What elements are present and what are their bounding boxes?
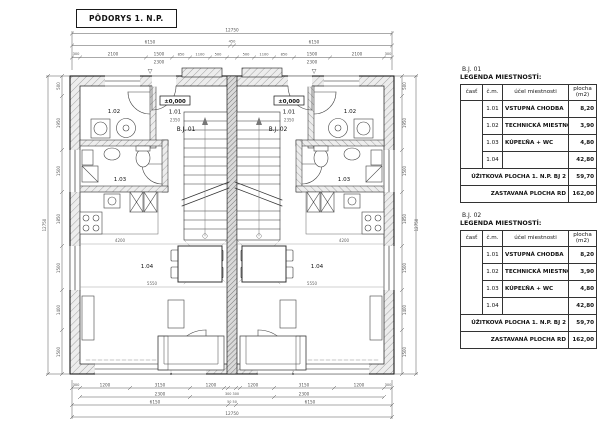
room-number: 1.03 [483,135,503,152]
svg-text:1950: 1950 [56,117,61,128]
svg-text:2300: 2300 [307,60,318,65]
svg-text:1200: 1200 [248,383,259,388]
col-cast: časť [461,231,483,247]
svg-text:1400: 1400 [402,304,407,315]
legend-header-row: časť č.m. účel miestnosti plocha(m2) [461,231,597,247]
svg-text:300: 300 [385,52,393,56]
svg-text:500: 500 [215,53,223,57]
svg-text:300: 300 [73,383,81,387]
svg-text:1100: 1100 [259,53,269,57]
room-101-label: 1.01 [169,110,182,116]
unit-right [235,75,395,374]
svg-text:500: 500 [402,82,407,90]
svg-text:1500: 1500 [307,52,318,57]
legend-table-bj01: časť č.m. účel miestnosti plocha(m2) 1.0… [460,84,597,203]
sofa [158,336,224,370]
svg-text:3150: 3150 [299,383,310,388]
hall-dim: 2350 [284,118,295,123]
svg-text:1500: 1500 [56,165,61,176]
hall-dim: 2350 [170,118,181,123]
living-dim-a: 4200 [115,238,126,243]
svg-text:300: 300 [73,52,81,56]
room-102-label: 1.02 [344,109,356,115]
svg-text:12750: 12750 [225,28,239,33]
built-area-value: 162,00 [569,186,597,203]
coffee-table [168,300,184,328]
col-cm: č.m. [483,231,503,247]
room-name [503,152,569,169]
svg-text:1500: 1500 [154,52,165,57]
svg-text:300: 300 [385,383,393,387]
svg-text:1850: 1850 [56,213,61,224]
room-area: 8,20 [569,247,597,264]
col-ucel: účel miestnosti [503,85,569,101]
svg-text:500: 500 [56,82,61,90]
tv-cabinet [82,296,94,340]
col-cast: časť [461,85,483,101]
room-name: TECHNICKÁ MIESTNOSŤ [503,264,569,281]
svg-text:450: 450 [229,40,237,44]
room-area: 8,20 [569,101,597,118]
top-dimensions [70,31,394,70]
porch-pier [242,68,282,77]
svg-text:1400: 1400 [56,304,61,315]
svg-text:1200: 1200 [100,383,111,388]
drawing-sheet: ±0,000 1.01 2350 B.J. 01 1.02 1.03 1.04 … [0,0,600,426]
room-area: 3,90 [569,118,597,135]
col-plocha: plocha(m2) [569,85,597,101]
room-name: VSTUPNÁ CHODBA [503,247,569,264]
porch-pier [182,68,222,77]
legend-unit-label: B.J. 01 [462,66,598,73]
bathroom-door [142,164,162,184]
col-plocha: plocha(m2) [569,231,597,247]
svg-text:6150: 6150 [305,400,316,405]
svg-text:12750: 12750 [414,218,419,231]
useful-area-label: ÚŽITKOVÁ PLOCHA 1. N.P. BJ 2 [461,315,569,332]
legend-title: LEGENDA MIESTNOSTÍ: [460,74,598,81]
svg-text:6150: 6150 [145,40,156,45]
legend-row: 1.01 VSTUPNÁ CHODBA 8,20 [461,101,597,118]
built-area-label: ZASTAVANÁ PLOCHA RD [461,332,569,349]
room-name: KÚPEĽŇA + WC [503,135,569,152]
washer-boiler [91,119,136,139]
room-103-label: 1.03 [338,177,351,183]
svg-text:1500: 1500 [402,262,407,273]
level-marker: ±0,000 [278,99,300,105]
bottom-dimension-labels: 300 1200 3150 1200 1200 3150 1200 300 23… [73,383,393,417]
unit-left [69,75,229,374]
room-name: TECHNICKÁ MIESTNOSŤ [503,118,569,135]
legend-footer-useful: ÚŽITKOVÁ PLOCHA 1. N.P. BJ 2 59,70 [461,169,597,186]
svg-text:300 300: 300 300 [225,392,239,396]
party-wall [227,76,237,374]
room-name: VSTUPNÁ CHODBA [503,101,569,118]
legend-bj02: B.J. 02 LEGENDA MIESTNOSTÍ: časť č.m. úč… [460,212,598,349]
svg-text:1500: 1500 [402,346,407,357]
svg-text:1200: 1200 [206,383,217,388]
room-area: 3,90 [569,264,597,281]
room-number: 1.01 [483,101,503,118]
svg-text:6150: 6150 [309,40,320,45]
svg-text:1200: 1200 [354,383,365,388]
svg-text:850: 850 [178,53,186,57]
room-102-label: 1.02 [108,109,120,115]
svg-text:500: 500 [243,53,251,57]
legend-title: LEGENDA MIESTNOSTÍ: [460,220,598,227]
top-dimension-labels: 12750 6150 450 6150 300 2100 1500 850 11… [73,28,393,65]
svg-text:1850: 1850 [402,213,407,224]
room-name [503,298,569,315]
col-ucel: účel miestnosti [503,231,569,247]
useful-area-value: 59,70 [569,315,597,332]
room-number: 1.02 [483,264,503,281]
room-101-label: 1.01 [283,110,296,116]
svg-text:12750: 12750 [42,218,47,231]
room-number: 1.03 [483,281,503,298]
living-dim-b: 5550 [147,281,158,286]
dining-table [171,246,223,282]
room-104-label: 1.04 [141,264,154,270]
svg-text:850: 850 [281,53,289,57]
right-dimension-labels: 500 1950 1500 1850 1500 1400 1500 12750 [402,82,419,357]
entrance-marker: ▽ [312,68,317,75]
svg-text:2300: 2300 [154,60,165,65]
room-number: 1.02 [483,118,503,135]
svg-text:6150: 6150 [150,400,161,405]
cast-cell [461,101,483,169]
room-area: 42,80 [569,152,597,169]
legend-bj01: B.J. 01 LEGENDA MIESTNOSTÍ: časť č.m. úč… [460,66,598,203]
unit1-name: B.J. 01 [177,127,196,133]
useful-area-value: 59,70 [569,169,597,186]
legend-footer-useful: ÚŽITKOVÁ PLOCHA 1. N.P. BJ 2 59,70 [461,315,597,332]
entrance-marker: ▽ [148,68,153,75]
svg-text:1500: 1500 [56,262,61,273]
room-name: KÚPEĽŇA + WC [503,281,569,298]
living-dim-b: 5550 [307,281,318,286]
legend-row: 1.01 VSTUPNÁ CHODBA 8,20 [461,247,597,264]
room-area: 42,80 [569,298,597,315]
svg-text:2300: 2300 [299,392,310,397]
svg-text:1100: 1100 [195,53,205,57]
svg-text:2100: 2100 [108,52,119,57]
built-area-value: 162,00 [569,332,597,349]
legend-footer-built: ZASTAVANÁ PLOCHA RD 162,00 [461,332,597,349]
svg-text:1500: 1500 [56,346,61,357]
left-dimension-labels: 500 1950 1500 1850 1500 1400 1500 12750 [42,82,61,357]
drawing-title: PÔDORYS 1. N.P. [76,9,177,28]
svg-text:2100: 2100 [352,52,363,57]
useful-area-label: ÚŽITKOVÁ PLOCHA 1. N.P. BJ 2 [461,169,569,186]
built-area-label: ZASTAVANÁ PLOCHA RD [461,186,569,203]
living-dim-a: 4200 [339,238,350,243]
col-cm: č.m. [483,85,503,101]
legend-unit-label: B.J. 02 [462,212,598,219]
technical-room-door [128,92,150,114]
svg-text:50 50: 50 50 [227,400,237,404]
unit2-name: B.J. 02 [269,127,288,133]
legend-footer-built: ZASTAVANÁ PLOCHA RD 162,00 [461,186,597,203]
room-area: 4,80 [569,135,597,152]
room-number: 1.01 [483,247,503,264]
cast-cell [461,247,483,315]
level-marker: ±0,000 [164,99,186,105]
svg-text:3150: 3150 [155,383,166,388]
legend-table-bj02: časť č.m. účel miestnosti plocha(m2) 1.0… [460,230,597,349]
svg-text:2300: 2300 [155,392,166,397]
room-area: 4,80 [569,281,597,298]
room-number: 1.04 [483,152,503,169]
legend-header-row: časť č.m. účel miestnosti plocha(m2) [461,85,597,101]
kitchen [80,192,158,234]
svg-text:12750: 12750 [225,411,239,416]
svg-text:1500: 1500 [402,165,407,176]
room-104-label: 1.04 [311,264,324,270]
room-number: 1.04 [483,298,503,315]
room-103-label: 1.03 [114,177,127,183]
svg-text:1950: 1950 [402,117,407,128]
